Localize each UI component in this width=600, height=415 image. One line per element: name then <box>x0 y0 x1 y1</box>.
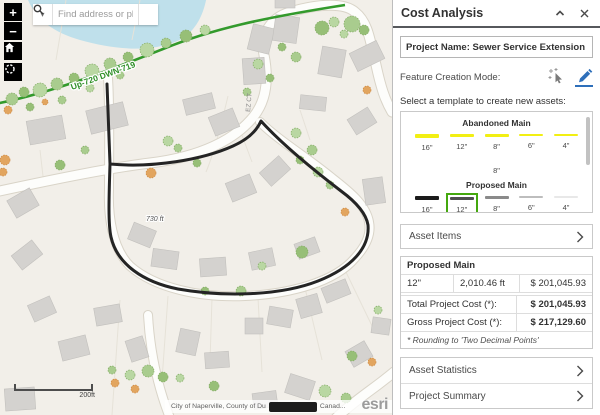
template-line-symbol <box>450 134 474 137</box>
asset-statistics-expander[interactable]: Asset Statistics <box>401 358 592 383</box>
template-item-label: 4" <box>563 141 570 150</box>
map-attribution: City of Naperville, County of Du Canad..… <box>165 400 392 413</box>
cost-analysis-panel: Cost Analysis Project Name: Sewer Servic… <box>392 0 600 415</box>
pencil-icon <box>576 67 593 84</box>
building-footprint <box>267 306 294 328</box>
shrub <box>363 86 371 94</box>
template-item-label: 12" <box>456 205 467 213</box>
building-footprint <box>151 248 179 269</box>
tree <box>278 43 286 51</box>
feature-creation-mode-row: Feature Creation Mode: <box>400 65 593 89</box>
template-item[interactable]: 4" <box>550 193 582 213</box>
tree <box>142 365 154 377</box>
tree <box>340 30 348 38</box>
rounding-footnote: * Rounding to 'Two Decimal Points' <box>401 332 592 348</box>
tree <box>174 144 182 152</box>
map-graphics: Up-720 DWN-719EZ CT730 ft <box>0 0 392 415</box>
template-prompt: Select a template to create new assets: <box>400 96 593 107</box>
template-row: 16"12"8"6"4" <box>401 193 592 213</box>
tree <box>193 159 201 167</box>
template-item[interactable]: 8" <box>481 131 513 153</box>
zoom-in-button[interactable]: + <box>4 3 22 21</box>
cost-table-header: Proposed Main <box>401 257 592 275</box>
template-item-label: 12" <box>456 142 467 151</box>
template-line-symbol <box>415 196 439 200</box>
project-name: Project Name: Sewer Service Extension <box>400 36 593 58</box>
tree <box>374 306 382 314</box>
tree <box>315 21 329 35</box>
magic-wand-tool-button[interactable] <box>547 67 565 87</box>
scale-label: 200ft <box>79 392 95 399</box>
scale-bar: 200ft <box>14 384 93 392</box>
template-row: 8" <box>401 155 592 178</box>
tree <box>258 262 266 270</box>
building-footprint <box>245 318 263 334</box>
tree <box>125 370 135 380</box>
tree <box>200 25 210 35</box>
asset-items-expander[interactable]: Asset Items <box>400 224 593 249</box>
tree <box>158 372 168 382</box>
cost-table-row: 12" 2,010.46 ft $ 201,045.93 <box>401 275 592 293</box>
expander-group: Asset Statistics Project Summary <box>400 357 593 409</box>
template-item-label: 6" <box>528 203 535 212</box>
tree <box>291 128 301 138</box>
tree <box>108 366 116 374</box>
draw-pencil-tool-button[interactable] <box>575 67 593 87</box>
building-footprint <box>199 257 226 277</box>
total-cost-label: Total Project Cost (*): <box>401 296 516 313</box>
template-line-symbol <box>450 197 474 200</box>
template-item[interactable]: 8" <box>481 193 513 213</box>
tree <box>161 38 171 48</box>
tree <box>347 351 357 361</box>
tree <box>307 145 317 155</box>
gallery-scrollbar[interactable] <box>586 117 590 165</box>
template-item-label: 8" <box>493 142 500 151</box>
asset-size: 12" <box>401 275 453 292</box>
building-footprint <box>204 351 229 369</box>
asset-statistics-label: Asset Statistics <box>409 365 576 376</box>
project-summary-expander[interactable]: Project Summary <box>401 383 592 408</box>
template-line-symbol <box>485 196 509 199</box>
total-cost-row: Total Project Cost (*): $ 201,045.93 <box>401 296 592 314</box>
app-window: Up-720 DWN-719EZ CT730 ft ▾ + − 200ft Ci <box>0 0 600 415</box>
gross-cost-value: $ 217,129.60 <box>516 314 592 331</box>
template-item-label: 8" <box>493 204 500 213</box>
measurement-label: 730 ft <box>146 216 165 223</box>
template-group-title: Abandoned Main <box>401 118 592 128</box>
template-item[interactable]: 8" <box>481 155 513 176</box>
shrub <box>146 168 156 178</box>
chevron-right-icon <box>576 390 584 402</box>
template-line-symbol <box>554 196 578 198</box>
template-line-symbol <box>485 134 509 137</box>
template-line-symbol <box>485 158 509 161</box>
tree <box>359 25 369 35</box>
panel-header: Cost Analysis <box>393 0 600 28</box>
panel-title: Cost Analysis <box>401 6 544 20</box>
template-item-selected[interactable]: 12" <box>446 193 478 213</box>
building-footprint <box>362 177 385 206</box>
shrub <box>4 106 12 114</box>
chevron-right-icon <box>576 231 584 243</box>
shrub <box>111 379 119 387</box>
panel-body: Project Name: Sewer Service Extension Fe… <box>393 36 600 415</box>
shrub <box>42 99 48 105</box>
attribution-text-2: Canad... <box>320 403 346 410</box>
feature-creation-mode-label: Feature Creation Mode: <box>400 72 547 83</box>
template-item[interactable]: 6" <box>515 193 547 213</box>
chevron-right-icon <box>576 365 584 377</box>
cost-summary-card: Proposed Main 12" 2,010.46 ft $ 201,045.… <box>400 256 593 349</box>
template-line-symbol <box>415 134 439 138</box>
esri-logo: esri <box>362 396 388 414</box>
tree <box>6 93 18 105</box>
tree <box>176 374 184 382</box>
gross-cost-row: Gross Project Cost (*): $ 217,129.60 <box>401 314 592 332</box>
search-input[interactable] <box>53 4 138 25</box>
template-line-symbol <box>519 196 543 198</box>
search-box: ▾ <box>33 4 158 25</box>
tree <box>344 16 360 32</box>
asset-items-label: Asset Items <box>409 231 576 242</box>
zoom-out-button[interactable]: − <box>4 22 22 40</box>
locate-button[interactable] <box>4 63 22 81</box>
template-line-symbol <box>519 134 543 136</box>
template-item-label: 16" <box>421 143 432 152</box>
tree <box>51 78 63 90</box>
template-item-label: 8" <box>493 166 500 175</box>
total-cost-value: $ 201,045.93 <box>516 296 592 313</box>
building-footprint <box>371 317 391 335</box>
tree <box>266 74 274 82</box>
template-row: 16"12"8"6"4" <box>401 131 592 155</box>
building-footprint <box>299 95 326 112</box>
template-item-label: 6" <box>528 141 535 150</box>
tree <box>81 146 89 154</box>
tree <box>58 96 66 104</box>
collapse-icon[interactable] <box>552 5 568 21</box>
shrub <box>368 358 376 366</box>
tree <box>209 381 219 391</box>
tree <box>253 59 263 69</box>
home-icon <box>4 42 15 53</box>
shrub <box>341 208 349 216</box>
tree <box>55 160 65 170</box>
search-icon[interactable] <box>138 4 158 25</box>
tree <box>140 43 154 57</box>
template-item[interactable]: 6" <box>515 131 547 153</box>
close-icon[interactable] <box>576 5 592 21</box>
shrub <box>0 155 10 165</box>
template-item[interactable]: 4" <box>550 131 582 153</box>
template-item-label: 16" <box>421 205 432 213</box>
shrub <box>131 385 139 393</box>
tree <box>163 136 173 146</box>
tree <box>180 30 192 42</box>
attribution-overlay-box <box>269 402 317 412</box>
template-group-title: Proposed Main <box>401 180 592 190</box>
template-line-symbol <box>554 134 578 136</box>
locate-icon <box>4 63 16 75</box>
asset-cost: $ 201,045.93 <box>519 275 592 292</box>
tree <box>296 246 308 258</box>
template-item-label: 4" <box>563 203 570 212</box>
tree <box>291 52 301 62</box>
tree <box>19 87 29 97</box>
gross-cost-label: Gross Project Cost (*): <box>401 314 516 331</box>
template-gallery: Abandoned Main16"12"8"6"4"8"Proposed Mai… <box>400 111 593 213</box>
tree <box>26 103 34 111</box>
map-canvas[interactable]: Up-720 DWN-719EZ CT730 ft ▾ + − 200ft Ci <box>0 0 392 415</box>
building-footprint <box>272 14 299 43</box>
tree <box>319 385 331 397</box>
template-item[interactable]: 12" <box>446 131 478 153</box>
attribution-text: City of Naperville, County of Du <box>171 403 266 410</box>
magic-wand-icon <box>548 67 565 84</box>
template-item[interactable]: 16" <box>411 131 443 153</box>
tree <box>33 83 47 97</box>
template-item[interactable]: 16" <box>411 193 443 213</box>
home-button[interactable] <box>4 42 22 60</box>
project-summary-label: Project Summary <box>409 391 576 402</box>
building-footprint <box>318 46 346 78</box>
building-footprint <box>275 0 295 8</box>
asset-length: 2,010.46 ft <box>453 275 519 292</box>
tree <box>329 17 339 27</box>
